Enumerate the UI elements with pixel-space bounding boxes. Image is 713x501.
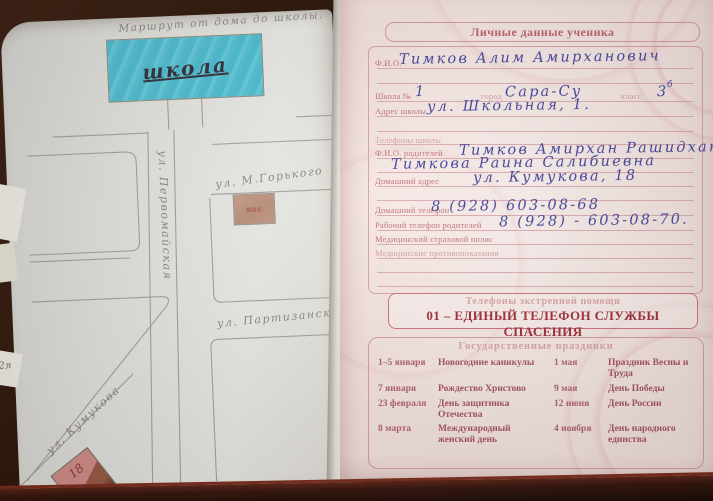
holiday-date: 9 мая <box>554 384 602 395</box>
holiday-name: День России <box>608 399 700 410</box>
school-address-label: Адрес школы <box>375 106 426 116</box>
holiday-date: 7 января <box>378 384 436 395</box>
form-rule <box>377 131 694 132</box>
holiday-name: Рождество Христово <box>438 384 553 395</box>
school-building: школа <box>106 33 265 102</box>
shop-building: маг. <box>233 193 276 226</box>
form-rule <box>377 230 694 231</box>
home-address-value: ул. Кумукова, 18 <box>473 168 637 186</box>
holiday-date: 12 июня <box>554 399 602 410</box>
holiday-name: День защитника Отечества <box>438 399 548 420</box>
form-rule <box>377 244 694 245</box>
state-holidays-header: Государственные праздники <box>369 341 703 352</box>
holiday-name: Праздник Весны и Труда <box>608 358 700 379</box>
holiday-date: 1–5 января <box>378 358 436 369</box>
edge-pencil-note: 2я <box>0 359 21 372</box>
emergency-phone-line: 01 – ЕДИНЫЙ ТЕЛЕФОН СЛУЖБЫ СПАСЕНИЯ <box>389 308 697 340</box>
form-rule <box>377 286 694 287</box>
personal-data-form: Ф.И.О. Тимков Алим Амирханович Школа № 1… <box>368 46 703 294</box>
form-rule <box>377 68 694 69</box>
left-page-map: Маршрут от дома до школы. школа ул. Перв… <box>0 9 352 496</box>
medical-contra-label: Медицинские противопоказания <box>375 248 499 258</box>
holiday-date: 1 мая <box>554 358 602 369</box>
emergency-phones-box: Телефоны экстренной помощи 01 – ЕДИНЫЙ Т… <box>388 293 698 329</box>
page-title-box: Личные данные ученика <box>385 22 700 42</box>
home-address-label: Домашний адрес <box>375 176 439 186</box>
state-holidays-box: Государственные праздники 1–5 января Нов… <box>368 337 704 469</box>
form-rule <box>377 116 694 117</box>
class-label: класс <box>621 91 642 101</box>
form-rule <box>377 186 694 187</box>
school-number-value: 1 <box>415 84 427 100</box>
class-value-letter: б <box>667 80 675 90</box>
holiday-date: 8 марта <box>378 424 436 435</box>
form-rule <box>377 272 694 273</box>
diary-photo: Маршрут от дома до школы. школа ул. Перв… <box>0 0 713 501</box>
holiday-name: День народного единства <box>608 424 700 445</box>
shop-building-label: маг. <box>245 204 263 214</box>
work-phone-value: 8 (928) - 603-08-70. <box>499 212 689 231</box>
holiday-date: 23 февраля <box>378 399 440 410</box>
page-title: Личные данные ученика <box>471 25 615 40</box>
holiday-name: Международный женский день <box>438 424 550 445</box>
work-phone-label: Рабочий телефон родителей <box>375 220 482 230</box>
holiday-name: Новогодние каникулы <box>438 358 548 369</box>
fio-label: Ф.И.О. <box>375 58 402 68</box>
school-number-label: Школа № <box>375 91 411 101</box>
right-page-form: Личные данные ученика Ф.И.О. Тимков Алим… <box>340 0 713 480</box>
holiday-date: 4 ноября <box>554 424 602 435</box>
school-building-label: школа <box>141 52 229 84</box>
emergency-phones-header: Телефоны экстренной помощи <box>389 296 697 307</box>
form-rule <box>377 258 694 259</box>
medical-policy-label: Медицинский страховой полис <box>375 234 493 244</box>
school-address-value: ул. Школьная, 1. <box>427 97 591 115</box>
holiday-name: День Победы <box>608 384 700 395</box>
fio-value: Тимков Алим Амирханович <box>399 48 661 68</box>
home-house-number: 18 <box>66 461 87 481</box>
